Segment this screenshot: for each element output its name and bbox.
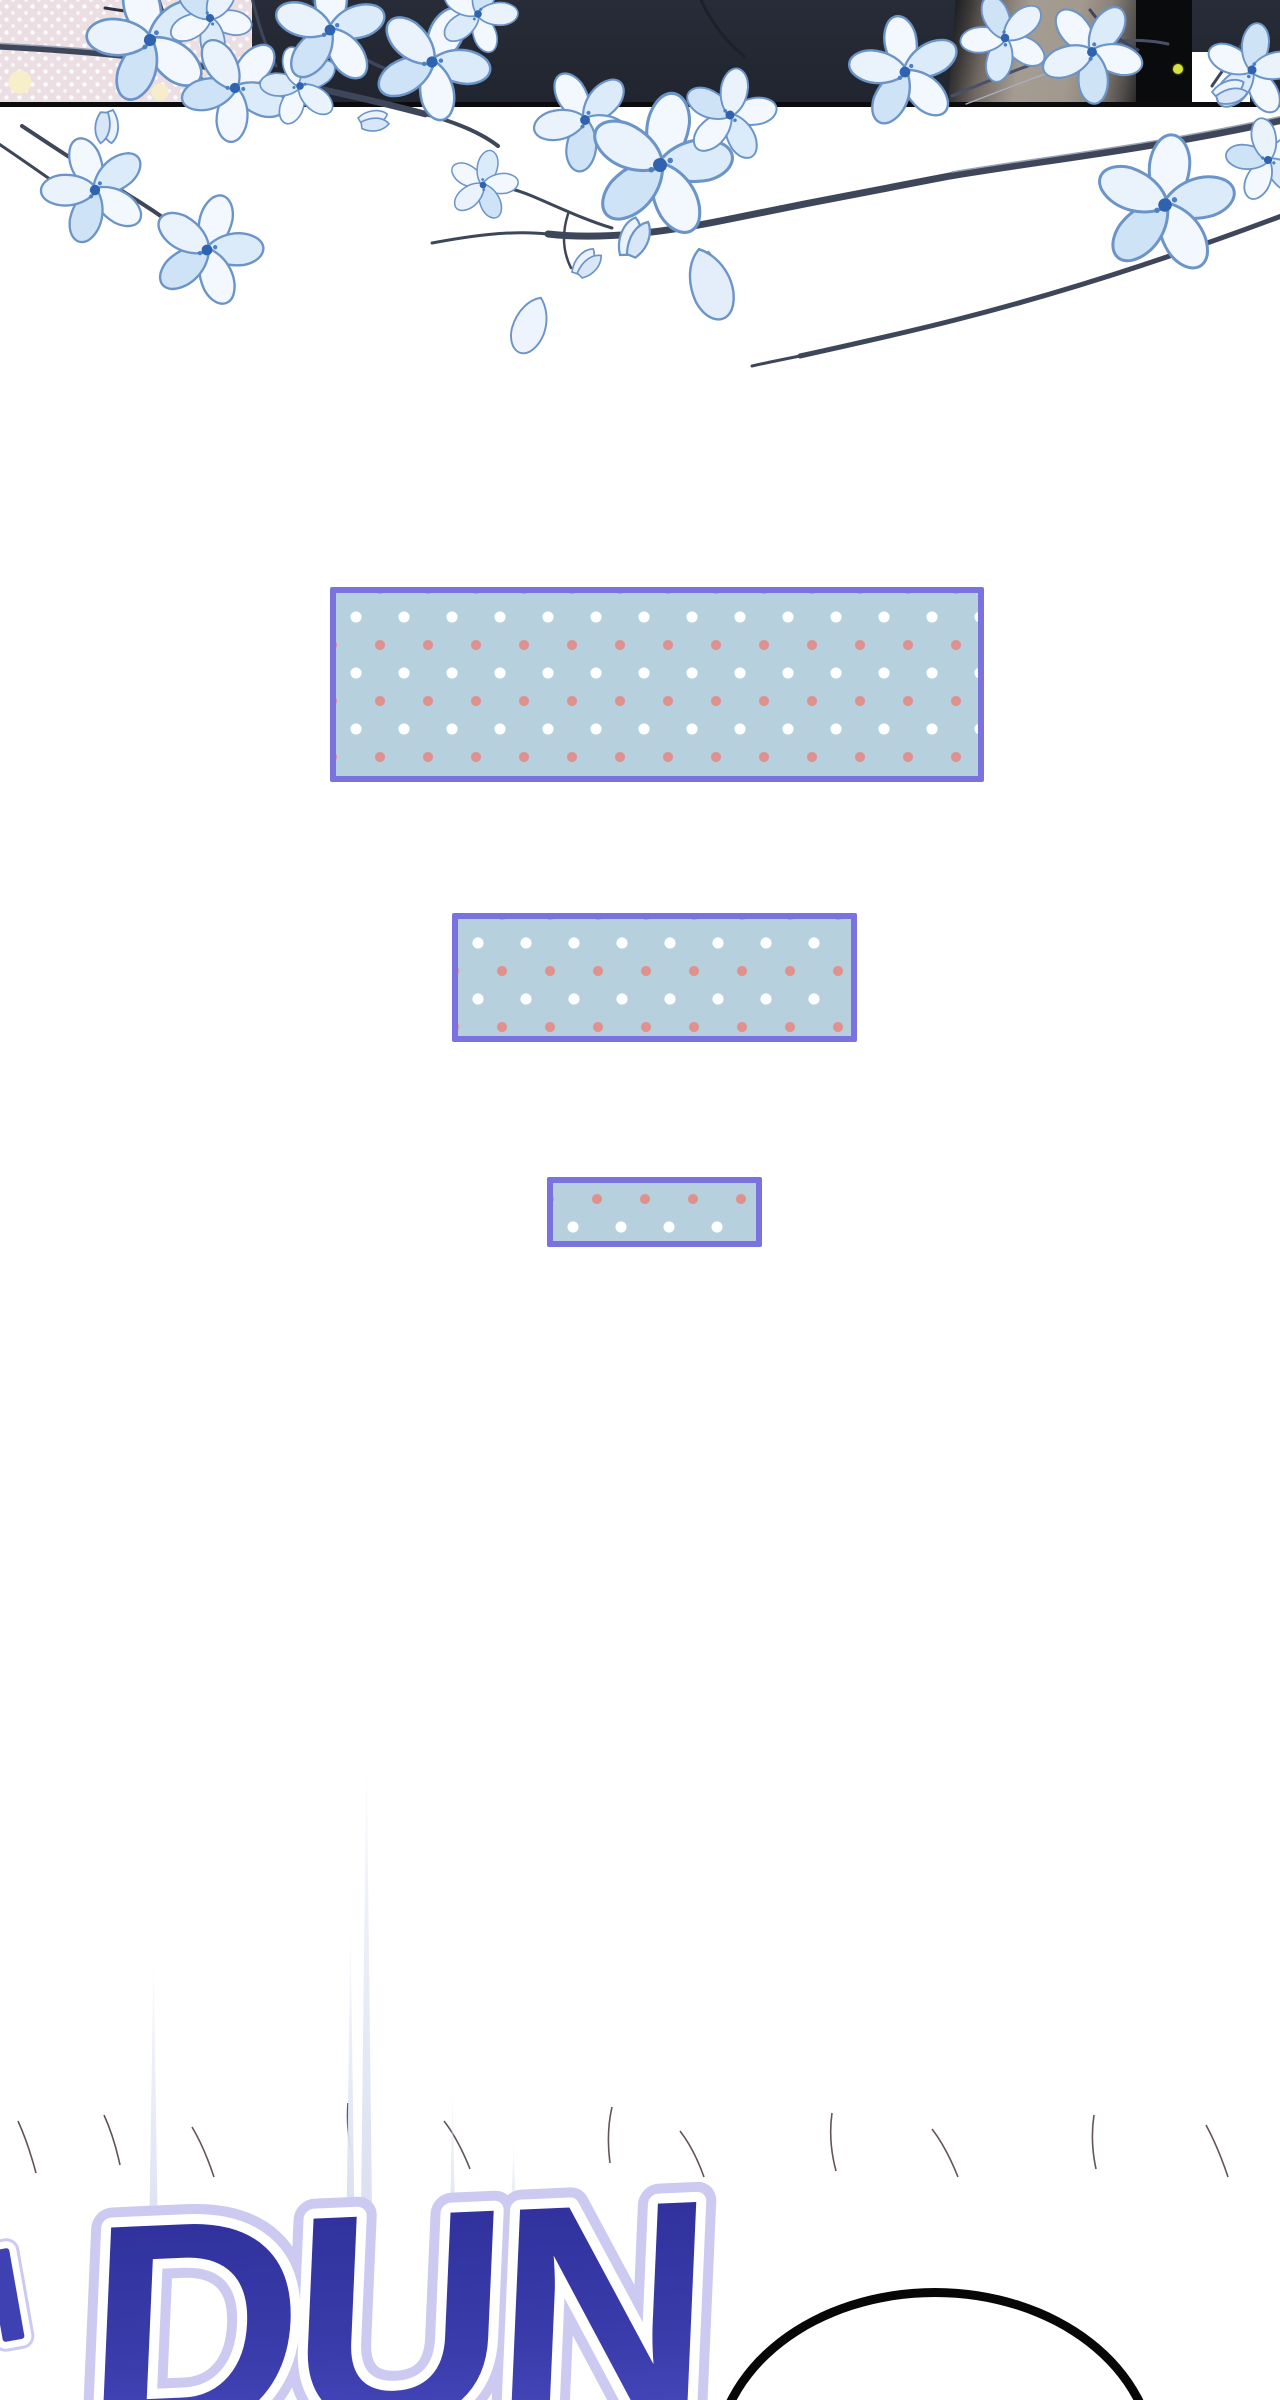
sfx-dun-fill: DUN [79,2136,707,2400]
white-notch [1192,52,1250,103]
pink-dotted-background [0,0,252,103]
grey-slab [948,0,1145,103]
sfx-dun: DUN DUN DUN [28,2170,788,2400]
dot-box-3 [547,1177,762,1247]
top-panel [0,0,1280,103]
comic-page: DUN DUN DUN [0,0,1280,2400]
black-band [1136,0,1192,103]
dot-box-2 [452,913,857,1042]
panel-border [0,102,1280,107]
yellow-accent-dot [1173,64,1183,74]
dot-box-1 [330,587,984,782]
